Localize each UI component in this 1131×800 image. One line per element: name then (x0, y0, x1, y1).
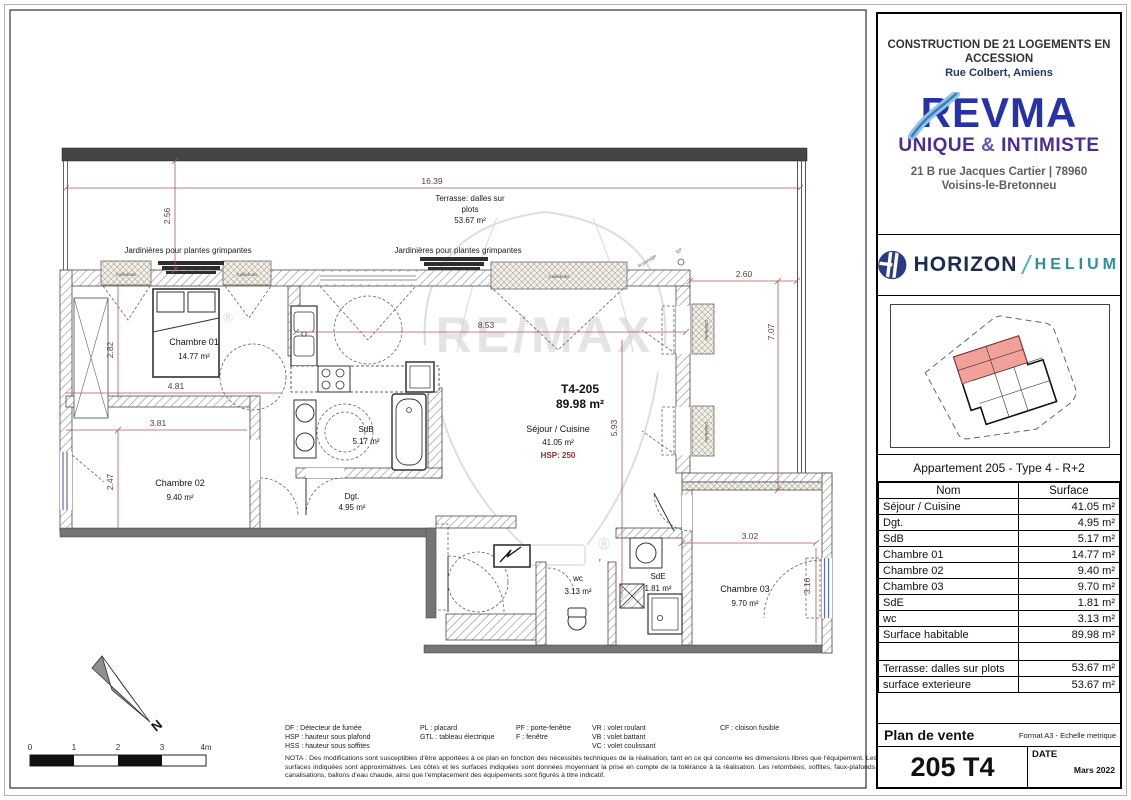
table-row-spacer (879, 643, 1120, 661)
registered-mark-2: ® (223, 310, 233, 325)
col-name: Nom (879, 483, 1019, 499)
surface-table: Nom Surface Séjour / Cuisine41.05 m² Dgt… (878, 482, 1120, 693)
col-surface: Surface (1018, 483, 1119, 499)
table-row: surface exterieure53.67 m² (879, 677, 1120, 693)
wc-label: wc (572, 574, 583, 583)
apartment-header: Appartement 205 - Type 4 - R+2 (878, 455, 1120, 482)
svg-text:0: 0 (28, 743, 33, 752)
title-block-panel: CONSTRUCTION DE 21 LOGEMENTS EN ACCESSIO… (876, 12, 1122, 789)
registered-mark: ® (598, 536, 610, 553)
legend-col-df: DF : Détecteur de fumée HSP : hauteur so… (285, 724, 370, 751)
nota-text: NOTA : Des modifications sont susceptibl… (285, 755, 877, 781)
svg-text:2.56: 2.56 (162, 207, 172, 224)
location-thumbnail (878, 296, 1120, 455)
hsp-label: HSP: 250 (541, 451, 576, 460)
terrace-label: Terrasse: dalles sur (435, 194, 505, 203)
svg-text:2: 2 (116, 743, 121, 752)
chambre02-label: Chambre 02 (155, 478, 205, 488)
svg-text:53.67 m²: 53.67 m² (454, 216, 486, 225)
plan-de-vente-sheet: RE/MAX ® ® (0, 0, 1131, 800)
date-value: Mars 2022 (1074, 765, 1115, 775)
unit-area: 89.98 m² (556, 397, 604, 411)
legend-col-pl: PL : placard GTL : tableau électrique (420, 724, 494, 742)
date-box: DATE Mars 2022 (1027, 747, 1120, 787)
svg-text:2.47: 2.47 (105, 473, 115, 490)
chambre03-label: Chambre 03 (720, 584, 770, 594)
chambre01-label: Chambre 01 (169, 337, 219, 347)
north-arrow: N (92, 656, 165, 734)
scale-bar: 0 1 2 3 4m (28, 743, 212, 766)
svg-text:7.07: 7.07 (766, 323, 776, 340)
project-header: CONSTRUCTION DE 21 LOGEMENTS EN ACCESSIO… (878, 14, 1120, 235)
mini-site-plan (891, 305, 1109, 447)
horizon-icon (878, 246, 907, 284)
table-row: SdB5.17 m² (879, 531, 1120, 547)
table-row: Chambre 039.70 m² (879, 579, 1120, 595)
svg-text:2.60: 2.60 (736, 269, 753, 279)
svg-text:14.77 m²: 14.77 m² (178, 352, 210, 361)
svg-text:4.81: 4.81 (168, 381, 185, 391)
svg-text:16.39: 16.39 (421, 176, 443, 186)
window-f-annotation: F (599, 558, 602, 563)
watermark-text: RE/MAX (436, 307, 654, 363)
svg-text:3: 3 (160, 743, 165, 752)
svg-text:3.81: 3.81 (150, 418, 167, 428)
revma-swoosh-icon (908, 92, 960, 140)
unit-code: T4-205 (561, 382, 599, 396)
dgt-label: Dgt. (345, 492, 360, 501)
doc-type: Plan de vente (878, 727, 974, 743)
ep-annotation: EP (675, 247, 683, 254)
svg-text:4.95 m²: 4.95 m² (338, 503, 365, 512)
caillebotis-label: Caillebotis (116, 272, 138, 277)
svg-text:1.81 m²: 1.81 m² (644, 584, 671, 593)
north-label: N (148, 717, 165, 735)
svg-text:3.02: 3.02 (742, 531, 759, 541)
jardinieres-label-left: Jardinières pour plantes grimpantes (124, 246, 251, 255)
legend-col-pf: PF : porte-fenêtre F : fenêtre (516, 724, 571, 742)
date-label: DATE (1032, 749, 1057, 760)
svg-text:5.17 m²: 5.17 m² (352, 437, 379, 446)
svg-text:4m: 4m (200, 743, 211, 752)
format-note: Format A3 - Echelle metrique (1019, 731, 1120, 740)
revma-address: 21 B rue Jacques Cartier | 78960 Voisins… (878, 165, 1120, 193)
svg-text:41.05 m²: 41.05 m² (542, 438, 574, 447)
table-row: Dgt.4.95 m² (879, 515, 1120, 531)
project-title: CONSTRUCTION DE 21 LOGEMENTS EN ACCESSIO… (878, 14, 1120, 66)
caillebotis-label: Caillebotis (704, 422, 709, 444)
svg-text:9.40 m²: 9.40 m² (166, 493, 193, 502)
table-row: Chambre 029.40 m² (879, 563, 1120, 579)
svg-text:9.70 m²: 9.70 m² (731, 599, 758, 608)
svg-text:3.16: 3.16 (802, 577, 812, 594)
unit-number: 205 T4 (878, 747, 1027, 787)
legend-col-vr: VR : volet roulant VB : volet battant VC… (592, 724, 655, 751)
table-row: wc3.13 m² (879, 611, 1120, 627)
caillebotis-label: Caillebotis (237, 272, 259, 277)
legend-col-cf: CF : cloison fusible (720, 724, 779, 733)
jardinieres-label-right: Jardinières pour plantes grimpantes (394, 246, 521, 255)
svg-text:2.82: 2.82 (105, 341, 115, 358)
svg-text:8.53: 8.53 (478, 320, 495, 330)
table-row: Terrasse: dalles sur plots53.67 m² (879, 661, 1120, 677)
svg-text:1: 1 (72, 743, 77, 752)
horizon-helium-logo: HORIZON / HELIUM (878, 235, 1120, 296)
sdb-label: SdB (358, 425, 373, 434)
sejour-label: Séjour / Cuisine (526, 424, 590, 434)
door-leaves (306, 478, 674, 612)
svg-text:plots: plots (462, 205, 479, 214)
table-row: Chambre 0114.77 m² (879, 547, 1120, 563)
table-row: Surface habitable89.98 m² (879, 627, 1120, 643)
table-row: Séjour / Cuisine41.05 m² (879, 499, 1120, 515)
legend: DF : Détecteur de fumée HSP : hauteur so… (283, 724, 877, 788)
project-address: Rue Colbert, Amiens (878, 67, 1120, 79)
caillebotis-label: Caillebotis (549, 274, 571, 279)
svg-text:5.93: 5.93 (609, 419, 619, 436)
caillebotis-label: Caillebotis (704, 320, 709, 342)
sde-label: SdE (650, 572, 665, 581)
title-block-bottom: Plan de vente Format A3 - Echelle metriq… (878, 723, 1120, 787)
table-row: SdE1.81 m² (879, 595, 1120, 611)
floor-plan-drawing: RE/MAX ® ® (0, 0, 876, 800)
svg-text:3.13 m²: 3.13 m² (564, 587, 591, 596)
thumbnail-frame (890, 304, 1110, 448)
